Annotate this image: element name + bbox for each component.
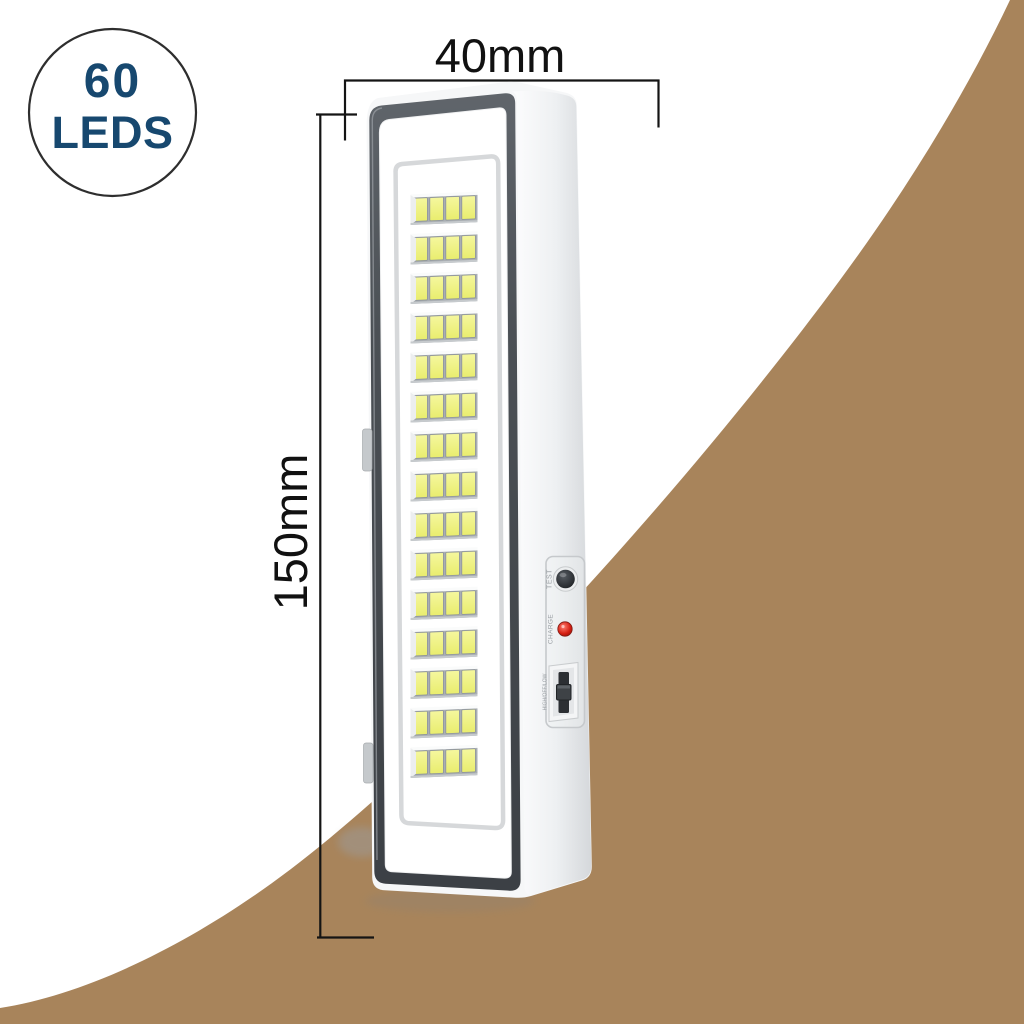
device-side-face [512,91,591,895]
led-strip-left-bevel [411,511,417,541]
led-chip [446,433,460,457]
led-chip [462,591,476,615]
led-chip [430,474,444,498]
led-chip [446,473,460,497]
test-button-highlight [560,573,567,577]
led-chip [446,710,460,734]
led-chip [430,434,444,458]
led-chip [462,670,476,694]
led-chip [446,236,460,260]
mounting-clip-bottom [364,743,374,783]
led-chip [462,512,476,536]
led-chip [446,670,460,694]
led-count-badge: 60 LEDS [29,29,196,196]
led-chip [462,393,476,417]
width-dimension-label: 40mm [435,29,566,82]
led-strip-left-bevel [411,550,417,580]
led-strip-row [411,271,478,304]
led-strip-left-bevel [411,748,417,778]
led-strip-row [411,350,478,383]
led-chip [430,237,444,261]
led-strip-left-bevel [411,432,417,462]
led-strip-row [411,666,478,699]
led-chip [462,749,476,773]
led-chip [446,512,460,536]
led-chip [446,394,460,418]
led-chip [462,709,476,733]
product-spec-image: 40mm 150mm TEST CH [0,0,1024,1024]
led-strip-left-bevel [411,234,417,264]
led-chip [462,354,476,378]
led-chip [430,553,444,577]
led-chip [462,551,476,575]
led-chip [430,276,444,300]
led-chip [430,671,444,695]
side-control-panel: TEST CHARGE HIGH/OFF/LOW [543,557,585,728]
led-strip-left-bevel [411,708,417,738]
led-chip [446,552,460,576]
emergency-led-light: TEST CHARGE HIGH/OFF/LOW [363,82,592,898]
test-button [556,570,575,589]
led-strip-row [411,587,478,620]
led-chip [430,355,444,379]
charge-indicator-label: CHARGE [548,614,555,644]
led-chip [430,197,444,221]
charge-indicator-highlight [561,625,564,628]
led-chip [430,750,444,774]
led-strip-left-bevel [411,590,417,620]
led-chip [462,275,476,299]
led-chip [430,632,444,656]
led-strip-row [411,705,478,738]
led-strip-left-bevel [411,313,417,343]
led-strip-row [411,310,478,343]
led-strip-row [411,508,478,541]
height-dimension-label: 150mm [264,454,317,611]
led-strip-row [411,192,478,225]
led-strip-row [411,745,478,778]
led-chip [446,591,460,615]
led-chip [446,354,460,378]
led-chip [446,749,460,773]
led-strip-row [411,389,478,422]
led-chip [430,592,444,616]
badge-value: 60 [84,55,141,108]
mounting-clip-top [363,429,373,471]
led-strip-row [411,547,478,580]
led-strip-left-bevel [411,353,417,383]
switch-knob-highlight [558,686,571,689]
led-chip [430,316,444,340]
mode-switch-label: HIGH/OFF/LOW [543,673,549,710]
led-chip [430,395,444,419]
test-button-label: TEST [547,569,554,589]
led-chip [430,711,444,735]
led-chip [462,433,476,457]
led-chip [462,630,476,654]
led-strip-left-bevel [411,629,417,659]
led-strip-left-bevel [411,669,417,699]
led-chip [462,235,476,259]
led-strip-left-bevel [411,392,417,422]
charge-indicator [558,622,572,636]
led-chip [462,196,476,220]
led-strip-left-bevel [411,471,417,501]
led-strip-left-bevel [411,274,417,304]
led-chip [446,631,460,655]
led-chip [430,513,444,537]
led-chip [462,314,476,338]
led-array [411,192,478,778]
led-chip [446,275,460,299]
led-chip [462,472,476,496]
led-strip-row [411,231,478,264]
led-strip-left-bevel [411,195,417,225]
led-strip-row [411,429,478,462]
led-chip [446,315,460,339]
badge-label: LEDS [51,107,173,158]
led-strip-row [411,626,478,659]
led-chip [446,196,460,220]
led-strip-row [411,468,478,501]
